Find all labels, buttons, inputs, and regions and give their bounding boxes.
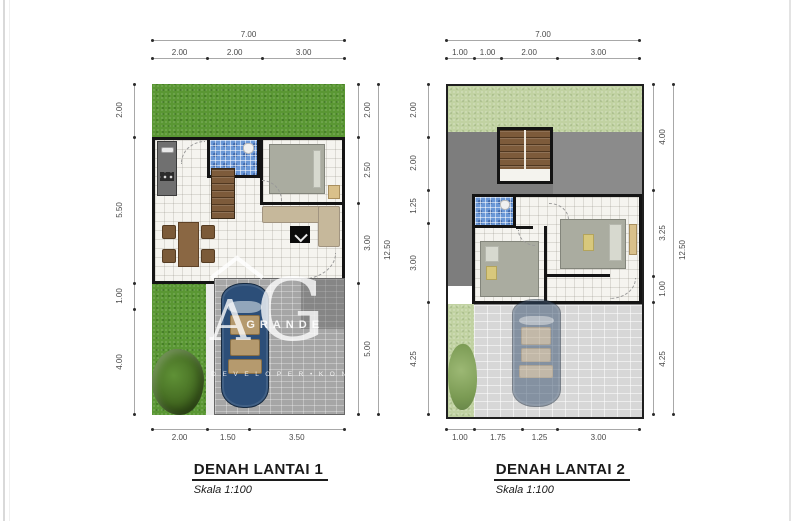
dimension-label: 2.00 — [115, 103, 124, 119]
toilet — [500, 200, 510, 210]
dimension-segment: 3.00 — [557, 421, 640, 439]
dimension-segment: 1.00 — [474, 50, 502, 68]
dim-chain-right-1: 2.002.503.005.00 — [350, 84, 368, 415]
dimension-segment: 1.25 — [420, 190, 438, 223]
dimension-segment: 2.00 — [501, 50, 556, 68]
bed-pillow — [313, 150, 322, 188]
dimension-label: 1.25 — [409, 199, 418, 215]
dimension-label: 1.00 — [115, 288, 124, 304]
chair — [201, 225, 215, 239]
dimension-segment: 2.00 — [126, 84, 144, 137]
house-floor-2 — [472, 194, 642, 305]
dimension-segment: 3.00 — [350, 203, 368, 282]
stairs — [211, 168, 235, 219]
dimension-label: 5.50 — [115, 202, 124, 218]
bed-pillow — [609, 224, 622, 261]
nightstand — [328, 185, 341, 200]
dimension-segment: 3.25 — [645, 190, 663, 276]
dimension-segment: 1.25 — [522, 421, 557, 439]
car-seats — [521, 348, 551, 362]
sofa-corner — [318, 206, 340, 247]
bedroom-divider-wall — [544, 226, 547, 302]
dimension-label: 1.25 — [532, 433, 548, 442]
dim-chain-top-2: 1.001.002.003.00 — [446, 50, 640, 68]
balcony-door-arc — [610, 278, 636, 299]
kitchen-sink — [161, 147, 174, 154]
bed — [560, 219, 626, 269]
hall-wall — [516, 226, 532, 229]
car-seats — [521, 327, 551, 344]
dimension-segment: 2.00 — [420, 84, 438, 137]
dimension-segment: 2.00 — [207, 50, 262, 68]
dimension-label: 1.00 — [452, 433, 468, 442]
plan-2-title-block: DENAH LANTAI 2 Skala 1:100 — [452, 461, 672, 498]
tree — [448, 344, 477, 410]
dim-chain-left-2: 2.002.001.253.004.25 — [420, 84, 438, 415]
dimension-segment: 4.00 — [645, 84, 663, 190]
dimension-segment: 12.50 — [370, 84, 388, 415]
dimension-label: 2.00 — [172, 433, 188, 442]
dimension-label: 3.00 — [591, 48, 607, 57]
stairs — [500, 130, 550, 168]
dimension-segment: 2.00 — [152, 421, 207, 439]
dimension-label: 2.00 — [521, 48, 537, 57]
dim-chain-left-1: 2.005.501.004.00 — [126, 84, 144, 415]
tv — [290, 226, 311, 243]
dimension-segment: 3.50 — [249, 421, 346, 439]
dim-chain-top-1: 2.002.003.00 — [152, 50, 345, 68]
dimension-segment: 4.25 — [645, 302, 663, 415]
bed-accent-pillow — [486, 266, 497, 280]
plan-1-title-block: DENAH LANTAI 1 Skala 1:100 — [150, 461, 370, 498]
dimension-segment: 5.00 — [350, 283, 368, 415]
dimension-label: 1.75 — [490, 433, 506, 442]
car-windshield — [519, 316, 554, 326]
dimension-segment: 1.00 — [126, 283, 144, 309]
bed-pillow — [485, 246, 500, 262]
dimension-segment: 12.50 — [665, 84, 683, 415]
car-rear-deck — [519, 365, 553, 378]
dimension-segment: 1.00 — [446, 50, 474, 68]
chair — [162, 249, 176, 263]
balcony-wall — [544, 274, 610, 277]
dimension-segment: 3.00 — [420, 223, 438, 302]
photo-edge-line — [789, 0, 791, 521]
roof-side-strip — [448, 194, 472, 287]
dim-chain-top-total-2: 7.00 — [446, 32, 640, 50]
plan-1-scale: Skala 1:100 — [192, 484, 329, 496]
toilet — [243, 143, 254, 154]
nightstand — [629, 224, 637, 255]
dimension-label: 2.00 — [409, 156, 418, 172]
dimension-segment: 5.50 — [126, 137, 144, 283]
car-seats — [230, 339, 260, 355]
door-arc — [181, 141, 205, 164]
floor-plan-sheet: 7.00 2.002.003.00 2.001.503.50 2.005.501… — [0, 0, 804, 521]
dimension-label: 3.50 — [289, 433, 305, 442]
backyard-grass — [152, 84, 345, 137]
plan-1-title: DENAH LANTAI 1 — [192, 461, 329, 481]
dimension-label: 1.00 — [480, 48, 496, 57]
dimension-label: 1.00 — [452, 48, 468, 57]
dim-chain-bottom-1: 2.001.503.50 — [152, 421, 345, 439]
stair-divider — [524, 130, 526, 168]
dim-chain-right-2: 4.003.251.004.25 — [645, 84, 663, 415]
plan-2-title: DENAH LANTAI 2 — [494, 461, 631, 481]
dim-chain-right-total-2: 12.50 — [665, 84, 683, 415]
dining-table — [178, 222, 199, 267]
bed-accent-pillow — [583, 234, 594, 251]
dimension-label: 7.00 — [241, 30, 257, 39]
house-floor-1 — [152, 137, 345, 284]
dimension-label: 4.00 — [115, 354, 124, 370]
tree — [152, 349, 204, 415]
dimension-label: 2.00 — [409, 103, 418, 119]
dimension-label: 2.00 — [227, 48, 243, 57]
chair — [201, 249, 215, 263]
dimension-label: 3.00 — [591, 433, 607, 442]
bathroom-2 — [475, 197, 516, 228]
dimension-label: 2.00 — [172, 48, 188, 57]
photo-edge-line — [3, 0, 5, 521]
kitchen-stove — [160, 172, 174, 182]
photo-edge-line — [9, 0, 10, 521]
dimension-segment: 3.00 — [557, 50, 640, 68]
bed — [480, 241, 539, 298]
dimension-segment: 2.50 — [350, 137, 368, 203]
roof-deck-light — [553, 132, 642, 193]
dimension-segment: 2.00 — [152, 50, 207, 68]
dimension-segment: 3.00 — [262, 50, 345, 68]
dimension-segment: 2.00 — [350, 84, 368, 137]
dimension-label: 7.00 — [535, 30, 551, 39]
dimension-segment: 7.00 — [446, 32, 640, 50]
dimension-segment: 2.00 — [420, 137, 438, 190]
carport-shadow — [301, 279, 344, 329]
dimension-segment: 4.25 — [420, 302, 438, 415]
floor-1-plan-drawing: AG GRANDE D E V E L O P E R • K O N T R … — [152, 84, 345, 415]
dimension-label: 3.00 — [296, 48, 312, 57]
dimension-segment: 1.00 — [645, 276, 663, 302]
car-windshield — [227, 301, 262, 312]
stairwell — [497, 127, 553, 183]
plan-2-scale: Skala 1:100 — [494, 484, 631, 496]
car-top-view — [221, 283, 269, 409]
dim-chain-bottom-2: 1.001.751.253.00 — [446, 421, 640, 439]
dimension-label: 12.50 — [383, 239, 392, 259]
chair — [162, 225, 176, 239]
dimension-label: 4.25 — [409, 351, 418, 367]
floor-2-plan-drawing — [446, 84, 644, 419]
kitchen-counter — [157, 141, 178, 196]
car-seats — [230, 315, 260, 335]
door-arc — [549, 203, 569, 220]
dimension-label: 1.50 — [220, 433, 236, 442]
walkway — [206, 284, 214, 415]
dimension-segment: 4.00 — [126, 309, 144, 415]
dimension-segment: 1.00 — [446, 421, 474, 439]
dimension-segment: 1.75 — [474, 421, 523, 439]
roof-garden-pale-grass — [448, 86, 642, 132]
entry-door-arc — [299, 253, 336, 280]
dimension-segment: 1.50 — [207, 421, 248, 439]
dim-chain-right-total-1: 12.50 — [370, 84, 388, 415]
dimension-label: 12.50 — [678, 239, 687, 259]
car-rear-deck — [228, 359, 262, 374]
dining-set — [162, 218, 214, 272]
car-top-view-faded — [512, 299, 561, 407]
dimension-label: 3.00 — [409, 255, 418, 271]
